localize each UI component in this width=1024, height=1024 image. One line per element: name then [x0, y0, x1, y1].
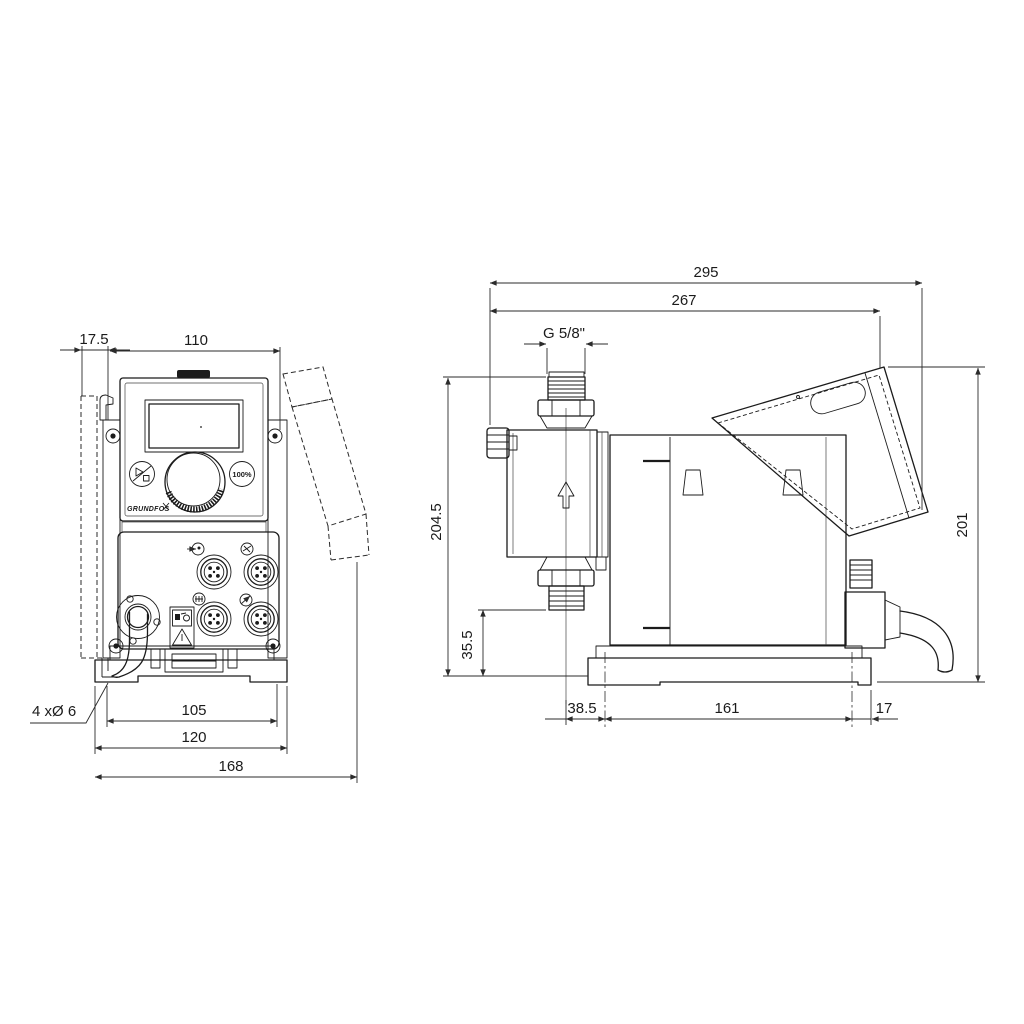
stop-icon [144, 476, 150, 482]
front-view: 100% GRUNDFOS [30, 331, 369, 783]
svg-text:4 xØ 6: 4 xØ 6 [32, 703, 76, 720]
dim-thread-g58: G 5/8" [524, 325, 608, 374]
svg-text:110: 110 [184, 332, 208, 349]
svg-text:105: 105 [181, 702, 206, 719]
svg-text:201: 201 [954, 512, 971, 537]
start-stop-button[interactable] [130, 462, 155, 487]
flange-screw-top-right [268, 429, 282, 443]
hundred-percent-label: 100% [232, 470, 252, 479]
display-frame [145, 400, 243, 452]
dim-outlet-height-35-5: 35.5 [459, 610, 546, 676]
dim-front-overall-168: 168 [95, 562, 357, 783]
signal-input-icon [187, 543, 204, 555]
dim-bottom-row: 38.5 161 17 [545, 690, 898, 725]
panel-gap-band [122, 522, 266, 532]
thread-bottom [549, 586, 584, 610]
m12-connector-2[interactable] [244, 555, 278, 589]
hood-handle-recess[interactable] [808, 380, 868, 417]
dimensional-drawing-page: 100% GRUNDFOS [0, 0, 1024, 1024]
panel-top-tab [177, 370, 210, 378]
click-wheel-knob[interactable] [165, 452, 225, 512]
rear-cable-gland [845, 560, 953, 672]
control-panel: 100% GRUNDFOS [120, 370, 268, 521]
power-cable-side [900, 611, 953, 672]
lower-housing [109, 532, 280, 677]
display-dot [200, 426, 202, 428]
play-icon [136, 468, 143, 476]
mounting-bracket-front [95, 646, 287, 682]
svg-text:267: 267 [671, 292, 696, 309]
dosing-head [487, 428, 597, 610]
level-sensor-icon [193, 593, 205, 605]
svg-text:295: 295 [693, 264, 718, 281]
warning-label [170, 607, 194, 648]
svg-text:17: 17 [876, 700, 893, 717]
svg-text:38.5: 38.5 [567, 700, 596, 717]
dim-rear-height-201: 201 [877, 367, 985, 682]
bus-signal-icon [241, 543, 253, 555]
display-screen [149, 404, 239, 448]
body-clip-front [683, 470, 703, 495]
svg-text:35.5: 35.5 [459, 630, 476, 659]
hood-side [712, 367, 928, 536]
hood-dashed-front [283, 367, 369, 560]
hundred-percent-button[interactable]: 100% [230, 462, 255, 487]
dim-front-width-110: 110 [110, 332, 280, 430]
label-mount-holes: 4 xØ 6 [30, 683, 108, 723]
svg-text:204.5: 204.5 [428, 503, 445, 541]
dim-front-hole-pitch-105: 105 [107, 684, 277, 727]
dim-total-height-204-5: 204.5 [428, 377, 588, 676]
wall-plate-hook [100, 395, 113, 420]
svg-text:G 5/8": G 5/8" [543, 325, 585, 342]
flange-screw-top-left [106, 429, 120, 443]
cable-gland [112, 596, 160, 678]
dim-side-overall-295: 295 [490, 264, 922, 510]
head-mount-plate [596, 432, 608, 570]
svg-text:120: 120 [181, 729, 206, 746]
m12-connector-4[interactable] [244, 602, 278, 636]
m12-connector-3[interactable] [197, 602, 231, 636]
pump-dimensional-drawing: 100% GRUNDFOS [0, 0, 1024, 1024]
pump-body-side [610, 435, 846, 645]
dim-front-bracket-120: 120 [95, 686, 287, 754]
m12-connector-1[interactable] [197, 555, 231, 589]
flow-monitor-icon [240, 594, 252, 606]
svg-text:161: 161 [714, 700, 739, 717]
svg-text:17.5: 17.5 [79, 331, 108, 348]
suction-discharge-thread-top [548, 372, 585, 400]
deaeration-valve-knob[interactable] [487, 428, 517, 458]
svg-text:168: 168 [218, 758, 243, 775]
side-view: 295 267 G 5/8" 204.5 35.5 [428, 264, 985, 728]
